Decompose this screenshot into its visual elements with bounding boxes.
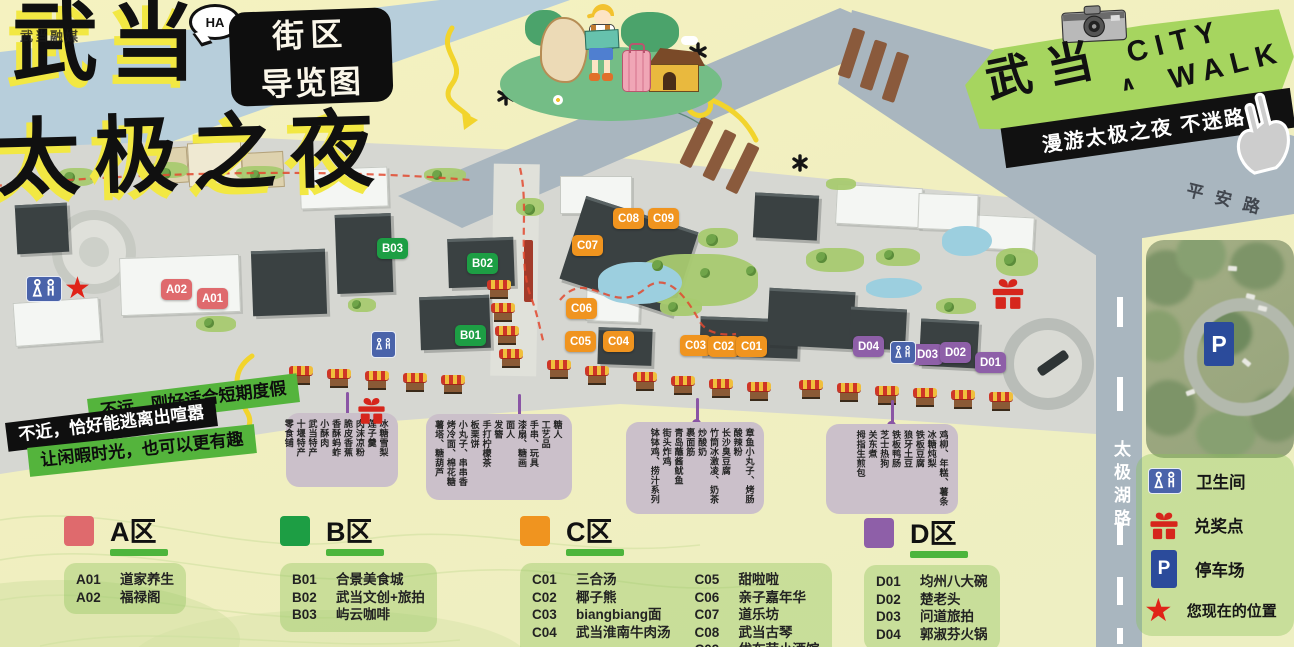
ha-text: HA: [206, 15, 225, 30]
food-stall-icon: [495, 326, 519, 345]
facility-label: 您现在的位置: [1187, 600, 1277, 621]
toilet-icon: [371, 331, 396, 358]
food-stall-icon: [633, 372, 657, 391]
zone-b-swatch: [280, 516, 310, 546]
map-marker-d01: D01: [975, 352, 1006, 373]
underline-bar: [110, 549, 168, 556]
zone-legend-c: C区 C01三合汤 C02椰子熊 C03biangbiang面 C04武当淮南牛…: [520, 516, 832, 647]
legend-item: D04郭淑芬火锅: [876, 626, 988, 644]
map-marker-c07: C07: [572, 235, 603, 256]
food-stall-icon: [799, 380, 823, 399]
facility-label: 卫生间: [1196, 469, 1246, 493]
watermark-text: 武当融媒: [20, 26, 80, 45]
map-marker-a01: A01: [197, 288, 228, 309]
zone-c-swatch: [520, 516, 550, 546]
parking-icon: P: [1151, 550, 1177, 588]
legend-item: C06亲子嘉年华: [695, 589, 820, 607]
map-marker-c03: C03: [680, 335, 711, 356]
gift-icon: [356, 394, 387, 426]
legend-item: B01合景美食城: [292, 571, 425, 589]
zone-legend-b: B区 B01合景美食城 B02武当文创+旅拍 B03屿云咖啡: [280, 516, 437, 632]
facility-label: 停车场: [1195, 557, 1245, 581]
zone-legend-d: D区 D01均州八大碗 D02楚老头 D03问道旅拍 D04郭淑芬火锅: [864, 518, 1000, 647]
map-marker-c08: C08: [613, 208, 644, 229]
legend-item: C09优布劳小酒馆: [695, 641, 820, 647]
zone-legend-a: A区 A01道家养生 A02福禄阁: [64, 516, 186, 614]
food-stall-icon: [499, 349, 523, 368]
zone-c-title: C区: [566, 519, 613, 546]
food-stall-icon: [403, 373, 427, 392]
legend-item: D01均州八大碗: [876, 573, 988, 591]
food-stall-icon: [989, 392, 1013, 411]
food-stall-icon: [441, 375, 465, 394]
legend-item: C01三合汤: [532, 571, 671, 589]
location-star-icon: ​: [64, 274, 91, 304]
legend-item: D02楚老头: [876, 591, 988, 609]
map-marker-d04: D04: [853, 336, 884, 357]
food-stall-icon: [709, 379, 733, 398]
zone-d-swatch: [864, 518, 894, 548]
stall-list-panel-4: 鸡柳、年糕、薯条冰糖炖梨 铁板豆腐狼牙土豆 铁板鸭肠芝士热狗 关东煮拇指生煎包: [826, 424, 958, 514]
legend-item: C08武当古琴: [695, 624, 820, 642]
legend-item: B02武当文创+旅拍: [292, 589, 425, 607]
gift-icon: [1148, 508, 1180, 542]
facility-label: 兑奖点: [1194, 513, 1244, 537]
map-marker-c05: C05: [565, 331, 596, 352]
food-stall-icon: [327, 369, 351, 388]
map-marker-b01: B01: [455, 325, 486, 346]
cloud-icon: [681, 36, 698, 45]
caret-mark: ∧: [1118, 73, 1137, 96]
food-stall-icon: [585, 366, 609, 385]
legend-item: B03屿云咖啡: [292, 606, 425, 624]
map-marker-b02: B02: [467, 253, 498, 274]
street-guide-poster: P: [0, 0, 1294, 647]
gift-icon: [990, 274, 1026, 312]
toilet-icon: [890, 341, 916, 364]
map-marker-c09: C09: [648, 208, 679, 229]
map-marker-c01: C01: [736, 336, 767, 357]
zone-d-title: D区: [910, 521, 957, 548]
legend-item: D03问道旅拍: [876, 608, 988, 626]
map-marker-b03: B03: [377, 238, 408, 259]
toilet-icon: [1148, 468, 1182, 494]
food-stall-icon: [837, 383, 861, 402]
facility-legend: 卫生间 兑奖点 P 停车场 您现在的位置: [1136, 454, 1294, 636]
map-marker-d02: D02: [940, 342, 971, 363]
rock-illustration: [540, 17, 588, 83]
map-marker-a02: A02: [161, 279, 192, 300]
underline-bar: [910, 551, 968, 558]
stall-list-panel-3: 章鱼小丸子、烤肠酸辣粉 长沙臭豆腐竹筒冰激凌、奶茶 炒酸奶裹面筋 青岛蘸酱鱿鱼街…: [626, 422, 764, 514]
poster-title-sub: 太极之夜: [0, 107, 389, 201]
food-stall-icon: [913, 388, 937, 407]
guide-badge: 街区 导览图: [228, 7, 393, 107]
suitcase-illustration: [622, 50, 651, 92]
toilet-icon: [26, 276, 62, 302]
legend-item: C05甜啦啦: [695, 571, 820, 589]
food-stall-icon: [747, 382, 771, 401]
food-stall-icon: [671, 376, 695, 395]
food-stall-icon: [547, 360, 571, 379]
food-stall-icon: [875, 386, 899, 405]
legend-item: C07道乐坊: [695, 606, 820, 624]
underline-bar: [326, 549, 384, 556]
stall-list-panel-2: 糖人工艺品 手串、玩具漆扇、糖画 面人发簪 手打柠檬茶板栗饼 小丸子、串串香烤冷…: [426, 414, 572, 500]
traveler-illustration: [495, 0, 765, 132]
zone-b-title: B区: [326, 519, 373, 546]
map-marker-c04: C04: [603, 331, 634, 352]
legend-item: A01道家养生: [76, 571, 174, 589]
food-stall-icon: [491, 303, 515, 322]
road-label-taijihu: 太极湖路: [1108, 440, 1133, 532]
legend-item: C04武当淮南牛肉汤: [532, 624, 671, 642]
map-marker-d03: D03: [912, 344, 943, 365]
zone-a-title: A区: [110, 519, 157, 546]
badge-line-1: 街区: [228, 7, 392, 59]
badge-line-2: 导览图: [230, 55, 394, 107]
underline-bar: [566, 549, 624, 556]
map-marker-c02: C02: [708, 336, 739, 357]
location-star-icon: [1144, 594, 1173, 626]
legend-item: A02福禄阁: [76, 589, 174, 607]
zone-a-swatch: [64, 516, 94, 546]
food-stall-icon: [951, 390, 975, 409]
food-stall-icon: [365, 371, 389, 390]
food-stall-icon: [487, 280, 511, 299]
legend-item: C03biangbiang面: [532, 606, 671, 624]
map-marker-c06: C06: [566, 298, 597, 319]
flower-icon: [553, 95, 563, 105]
legend-item: C02椰子熊: [532, 589, 671, 607]
